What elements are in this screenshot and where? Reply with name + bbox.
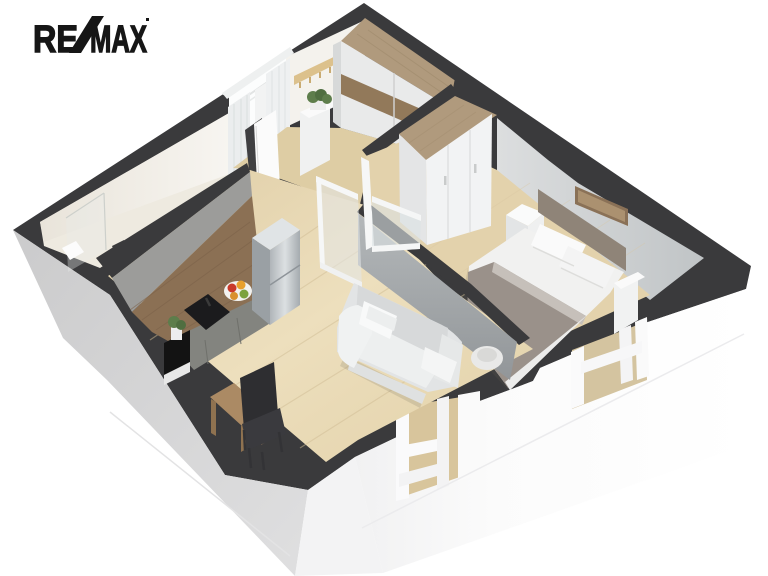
svg-text:MAX: MAX <box>90 19 147 61</box>
svg-text:RE: RE <box>33 19 78 61</box>
